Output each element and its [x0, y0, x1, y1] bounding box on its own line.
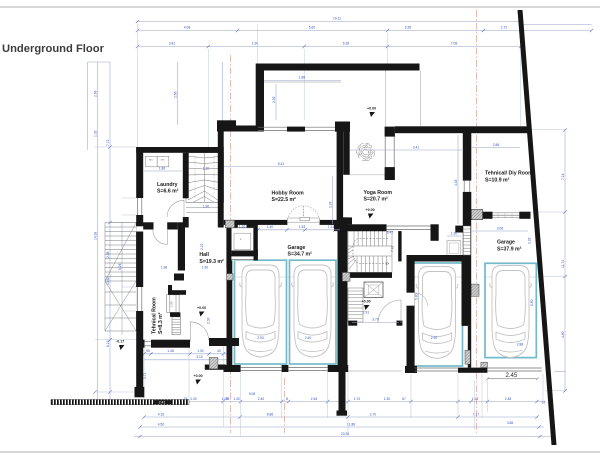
svg-text:Hobby Room: Hobby Room — [272, 191, 305, 197]
svg-text:3.41: 3.41 — [413, 145, 420, 149]
svg-text:+0.00: +0.00 — [366, 208, 375, 212]
svg-text:3.06: 3.06 — [497, 226, 504, 230]
svg-text:1.40: 1.40 — [267, 225, 274, 229]
svg-text:5.26: 5.26 — [118, 263, 122, 270]
svg-text:2.40: 2.40 — [305, 336, 312, 340]
svg-text:4.16: 4.16 — [158, 413, 165, 417]
svg-text:7.17: 7.17 — [473, 412, 480, 416]
svg-text:6.47: 6.47 — [387, 230, 394, 234]
svg-text:75: 75 — [226, 397, 230, 401]
svg-text:1.30: 1.30 — [451, 231, 458, 235]
svg-text:1.10: 1.10 — [239, 224, 246, 228]
svg-text:2.22: 2.22 — [200, 243, 204, 250]
svg-text:2.70: 2.70 — [370, 412, 377, 416]
svg-text:1.30: 1.30 — [384, 397, 391, 401]
svg-text:4.48: 4.48 — [454, 179, 458, 186]
svg-text:1.02: 1.02 — [93, 130, 97, 137]
svg-text:Tehnical Room: Tehnical Room — [152, 297, 158, 334]
svg-text:2.45: 2.45 — [311, 397, 318, 401]
svg-text:1.88: 1.88 — [299, 76, 306, 80]
svg-text:+0.00: +0.00 — [362, 300, 371, 304]
svg-text:1.30: 1.30 — [197, 349, 204, 353]
svg-text:+0.00: +0.00 — [367, 107, 376, 111]
svg-text:+0.00: +0.00 — [194, 374, 203, 378]
svg-text:2.90: 2.90 — [431, 336, 438, 340]
svg-text:5.80: 5.80 — [414, 293, 418, 300]
svg-text:11.74: 11.74 — [561, 260, 565, 268]
svg-text:67: 67 — [402, 397, 406, 401]
svg-text:S=10.9 m²: S=10.9 m² — [485, 178, 510, 184]
svg-text:Tehnical/ Diy Room: Tehnical/ Diy Room — [485, 171, 533, 177]
svg-text:7.16: 7.16 — [561, 173, 565, 180]
svg-text:2.98: 2.98 — [106, 251, 110, 258]
svg-text:2.88: 2.88 — [517, 343, 524, 347]
svg-text:1.30: 1.30 — [233, 397, 240, 401]
svg-text:62: 62 — [542, 400, 546, 404]
svg-text:6.19: 6.19 — [106, 340, 110, 347]
svg-text:+0.00: +0.00 — [197, 306, 206, 310]
svg-text:S=34.7 m²: S=34.7 m² — [288, 252, 313, 258]
svg-text:S=6.6 m²: S=6.6 m² — [157, 188, 179, 194]
svg-text:6.35: 6.35 — [405, 26, 412, 30]
svg-text:4.50: 4.50 — [158, 422, 165, 426]
svg-text:3.70: 3.70 — [372, 318, 379, 322]
svg-text:S=37.9 m²: S=37.9 m² — [497, 247, 522, 253]
svg-text:2.48: 2.48 — [505, 397, 512, 401]
svg-text:14.93: 14.93 — [93, 232, 97, 240]
svg-text:1.13: 1.13 — [328, 225, 335, 229]
svg-text:S=8.3 m²: S=8.3 m² — [158, 312, 164, 334]
svg-text:5.60: 5.60 — [309, 26, 316, 30]
svg-text:1.90: 1.90 — [252, 42, 259, 46]
svg-text:90: 90 — [146, 349, 150, 353]
svg-text:S=22.5 m²: S=22.5 m² — [272, 197, 297, 203]
svg-text:6.28: 6.28 — [343, 42, 350, 46]
svg-text:1.80: 1.80 — [170, 301, 174, 307]
svg-text:3.10: 3.10 — [196, 355, 203, 359]
svg-text:2.03: 2.03 — [206, 317, 210, 324]
svg-text:4.80: 4.80 — [561, 331, 565, 338]
svg-text:Laundry: Laundry — [157, 182, 178, 188]
svg-text:1.90: 1.90 — [202, 266, 209, 270]
svg-text:1.93: 1.93 — [299, 225, 306, 229]
svg-text:2.86: 2.86 — [493, 143, 500, 147]
svg-text:1.70: 1.70 — [354, 397, 361, 401]
svg-text:-0.17: -0.17 — [116, 340, 124, 344]
svg-text:8.80: 8.80 — [530, 299, 534, 306]
svg-text:1.98: 1.98 — [161, 266, 168, 270]
svg-text:7.72: 7.72 — [106, 139, 110, 146]
svg-text:7.42: 7.42 — [390, 245, 394, 252]
svg-text:1.48: 1.48 — [167, 349, 174, 353]
svg-text:1.30: 1.30 — [190, 397, 197, 401]
svg-text:S=19.3 m²: S=19.3 m² — [199, 259, 224, 265]
svg-text:Yoga Room: Yoga Room — [364, 190, 393, 196]
svg-text:2.41: 2.41 — [159, 401, 166, 405]
svg-text:2.72: 2.72 — [501, 26, 508, 30]
svg-text:1.86: 1.86 — [159, 166, 166, 170]
svg-text:9.08: 9.08 — [249, 392, 256, 396]
svg-text:5.41: 5.41 — [278, 162, 285, 166]
svg-text:wm: wm — [161, 160, 165, 162]
svg-text:2.91: 2.91 — [363, 311, 370, 315]
svg-text:Underground Floor: Underground Floor — [2, 43, 105, 55]
svg-text:2.28: 2.28 — [527, 237, 531, 244]
svg-text:3.86: 3.86 — [507, 421, 514, 425]
svg-text:1.13: 1.13 — [472, 397, 479, 401]
svg-text:2.93: 2.93 — [257, 336, 264, 340]
svg-text:1.90: 1.90 — [203, 204, 210, 208]
svg-text:2.71: 2.71 — [143, 372, 147, 379]
svg-text:Hall: Hall — [199, 252, 209, 258]
svg-text:Garage: Garage — [288, 245, 306, 251]
svg-text:43: 43 — [217, 349, 221, 353]
svg-text:8.86: 8.86 — [267, 412, 274, 416]
svg-text:wm: wm — [149, 160, 153, 162]
svg-text:8: 8 — [286, 397, 288, 401]
svg-text:3.28: 3.28 — [328, 201, 332, 208]
svg-text:2.02: 2.02 — [272, 96, 276, 103]
svg-text:2.45: 2.45 — [506, 373, 518, 379]
svg-text:S=20.7 m²: S=20.7 m² — [364, 196, 389, 202]
svg-text:4.08: 4.08 — [184, 26, 191, 30]
svg-text:2.66: 2.66 — [93, 90, 97, 97]
svg-text:3.81: 3.81 — [169, 42, 176, 46]
svg-text:1.20: 1.20 — [203, 166, 210, 170]
svg-text:Garage: Garage — [497, 240, 515, 246]
svg-text:2.40: 2.40 — [258, 397, 265, 401]
svg-text:19.11: 19.11 — [333, 17, 341, 21]
svg-text:2.66: 2.66 — [173, 91, 177, 98]
svg-text:7.08: 7.08 — [451, 42, 458, 46]
